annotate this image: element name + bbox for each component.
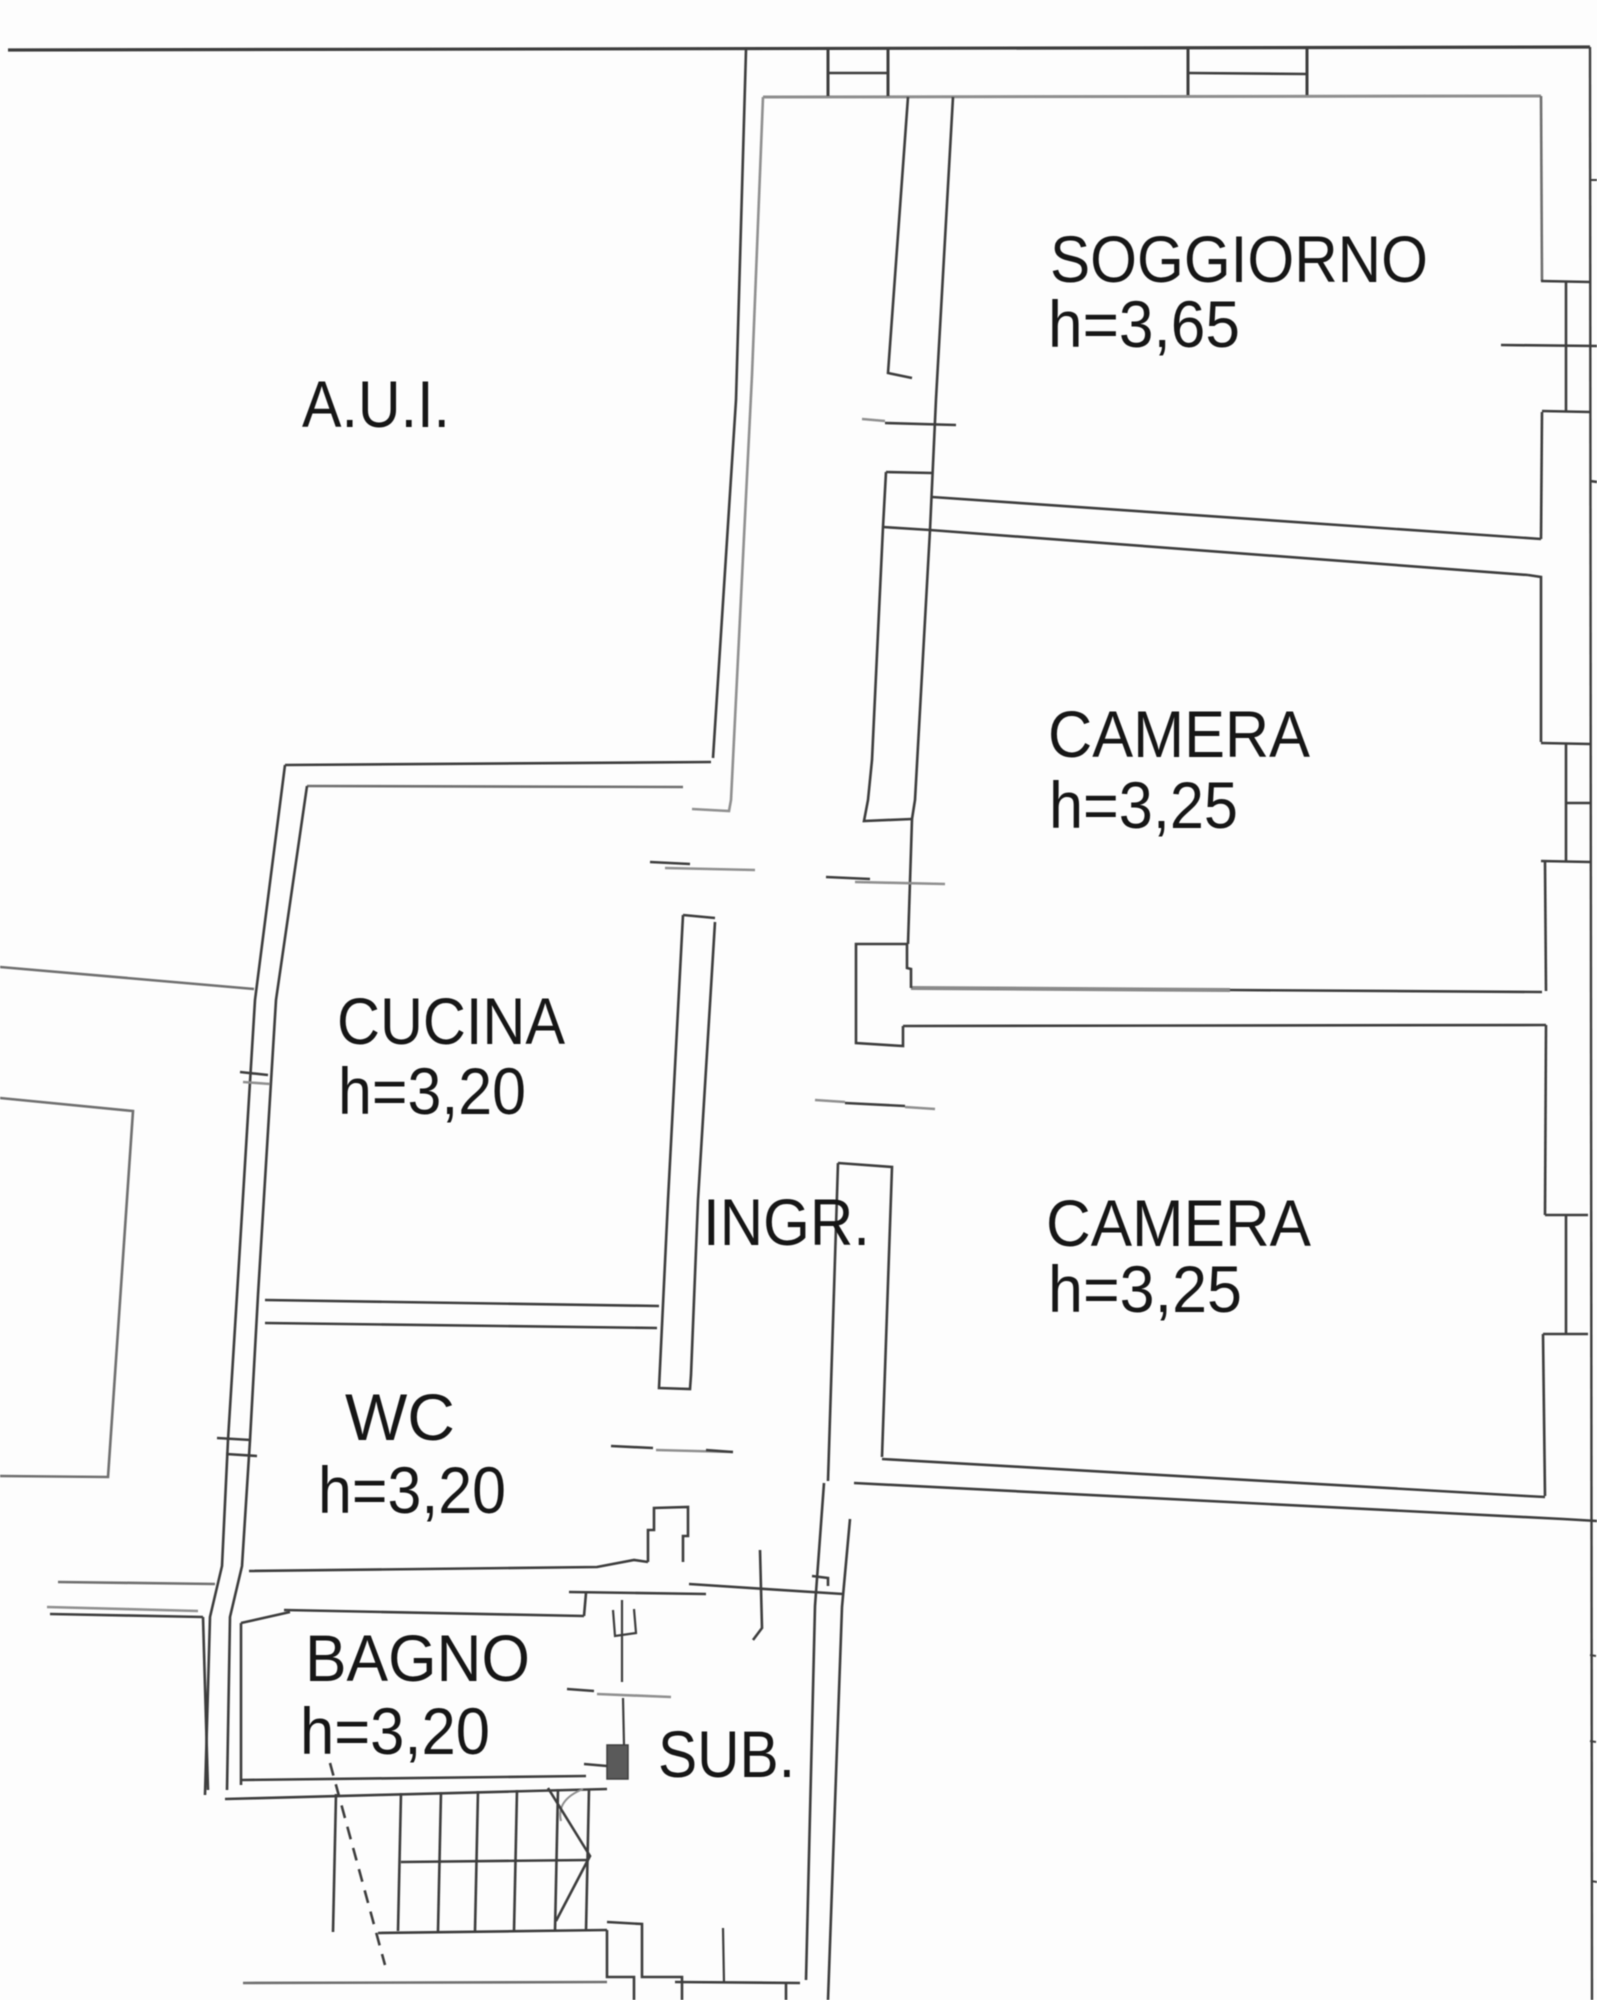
svg-text:CUCINA: CUCINA: [337, 984, 565, 1058]
svg-text:CAMERA: CAMERA: [1046, 1186, 1311, 1260]
svg-text:CAMERA: CAMERA: [1048, 697, 1310, 771]
svg-text:h=3,25: h=3,25: [1048, 1252, 1242, 1326]
svg-text:SUB.: SUB.: [658, 1717, 795, 1791]
svg-text:A.U.I.: A.U.I.: [302, 367, 450, 441]
svg-text:h=3,20: h=3,20: [338, 1054, 526, 1128]
svg-text:h=3,20: h=3,20: [318, 1453, 506, 1527]
svg-text:h=3,25: h=3,25: [1049, 768, 1238, 842]
svg-text:SOGGIORNO: SOGGIORNO: [1050, 222, 1428, 296]
svg-text:INGR.: INGR.: [703, 1185, 870, 1259]
svg-text:h=3,20: h=3,20: [300, 1694, 490, 1768]
svg-text:BAGNO: BAGNO: [305, 1621, 530, 1695]
svg-text:h=3,65: h=3,65: [1048, 287, 1240, 361]
svg-text:WC: WC: [345, 1380, 455, 1454]
